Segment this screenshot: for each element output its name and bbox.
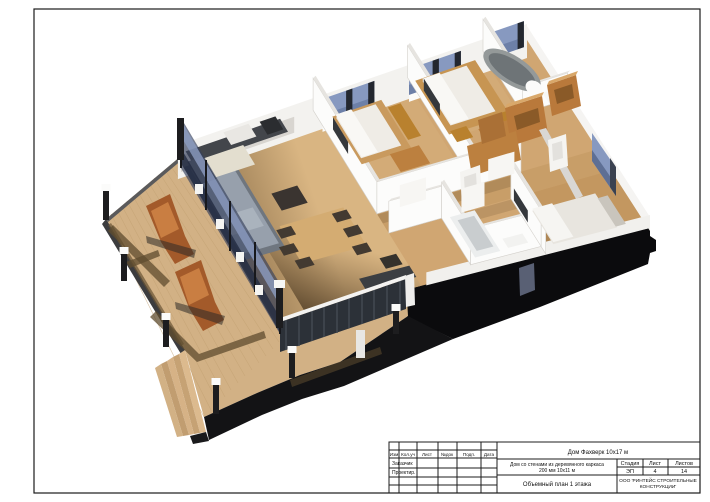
svg-text:Заказчик: Заказчик: [392, 461, 413, 467]
svg-text:ЭП: ЭП: [626, 469, 634, 475]
svg-text:14: 14: [681, 469, 687, 475]
svg-text:Лист: Лист: [422, 452, 433, 457]
svg-text:Дата: Дата: [484, 452, 495, 457]
svg-text:Кол.уч: Кол.уч: [401, 452, 415, 457]
svg-text:200 мм 10х11 м: 200 мм 10х11 м: [539, 468, 576, 474]
svg-text:Листов: Листов: [675, 461, 693, 467]
svg-text:Стадия: Стадия: [621, 461, 640, 467]
svg-text:4: 4: [653, 469, 656, 475]
svg-text:Подп.: Подп.: [463, 452, 475, 457]
svg-text:Лист: Лист: [649, 461, 661, 467]
svg-text:КОНСТРУКЦИИ': КОНСТРУКЦИИ': [640, 484, 677, 490]
svg-text:Изм: Изм: [390, 452, 399, 457]
svg-text:ООО 'РИНТЕЙС СТРОИТЕЛЬНЫЕ: ООО 'РИНТЕЙС СТРОИТЕЛЬНЫЕ: [619, 476, 697, 484]
svg-text:Дом Фахверк 10х17 м: Дом Фахверк 10х17 м: [568, 450, 628, 456]
svg-text:№док: №док: [441, 452, 454, 457]
svg-text:Проектир.: Проектир.: [392, 470, 415, 476]
svg-text:Объемный план 1 этажа: Объемный план 1 этажа: [523, 481, 592, 488]
